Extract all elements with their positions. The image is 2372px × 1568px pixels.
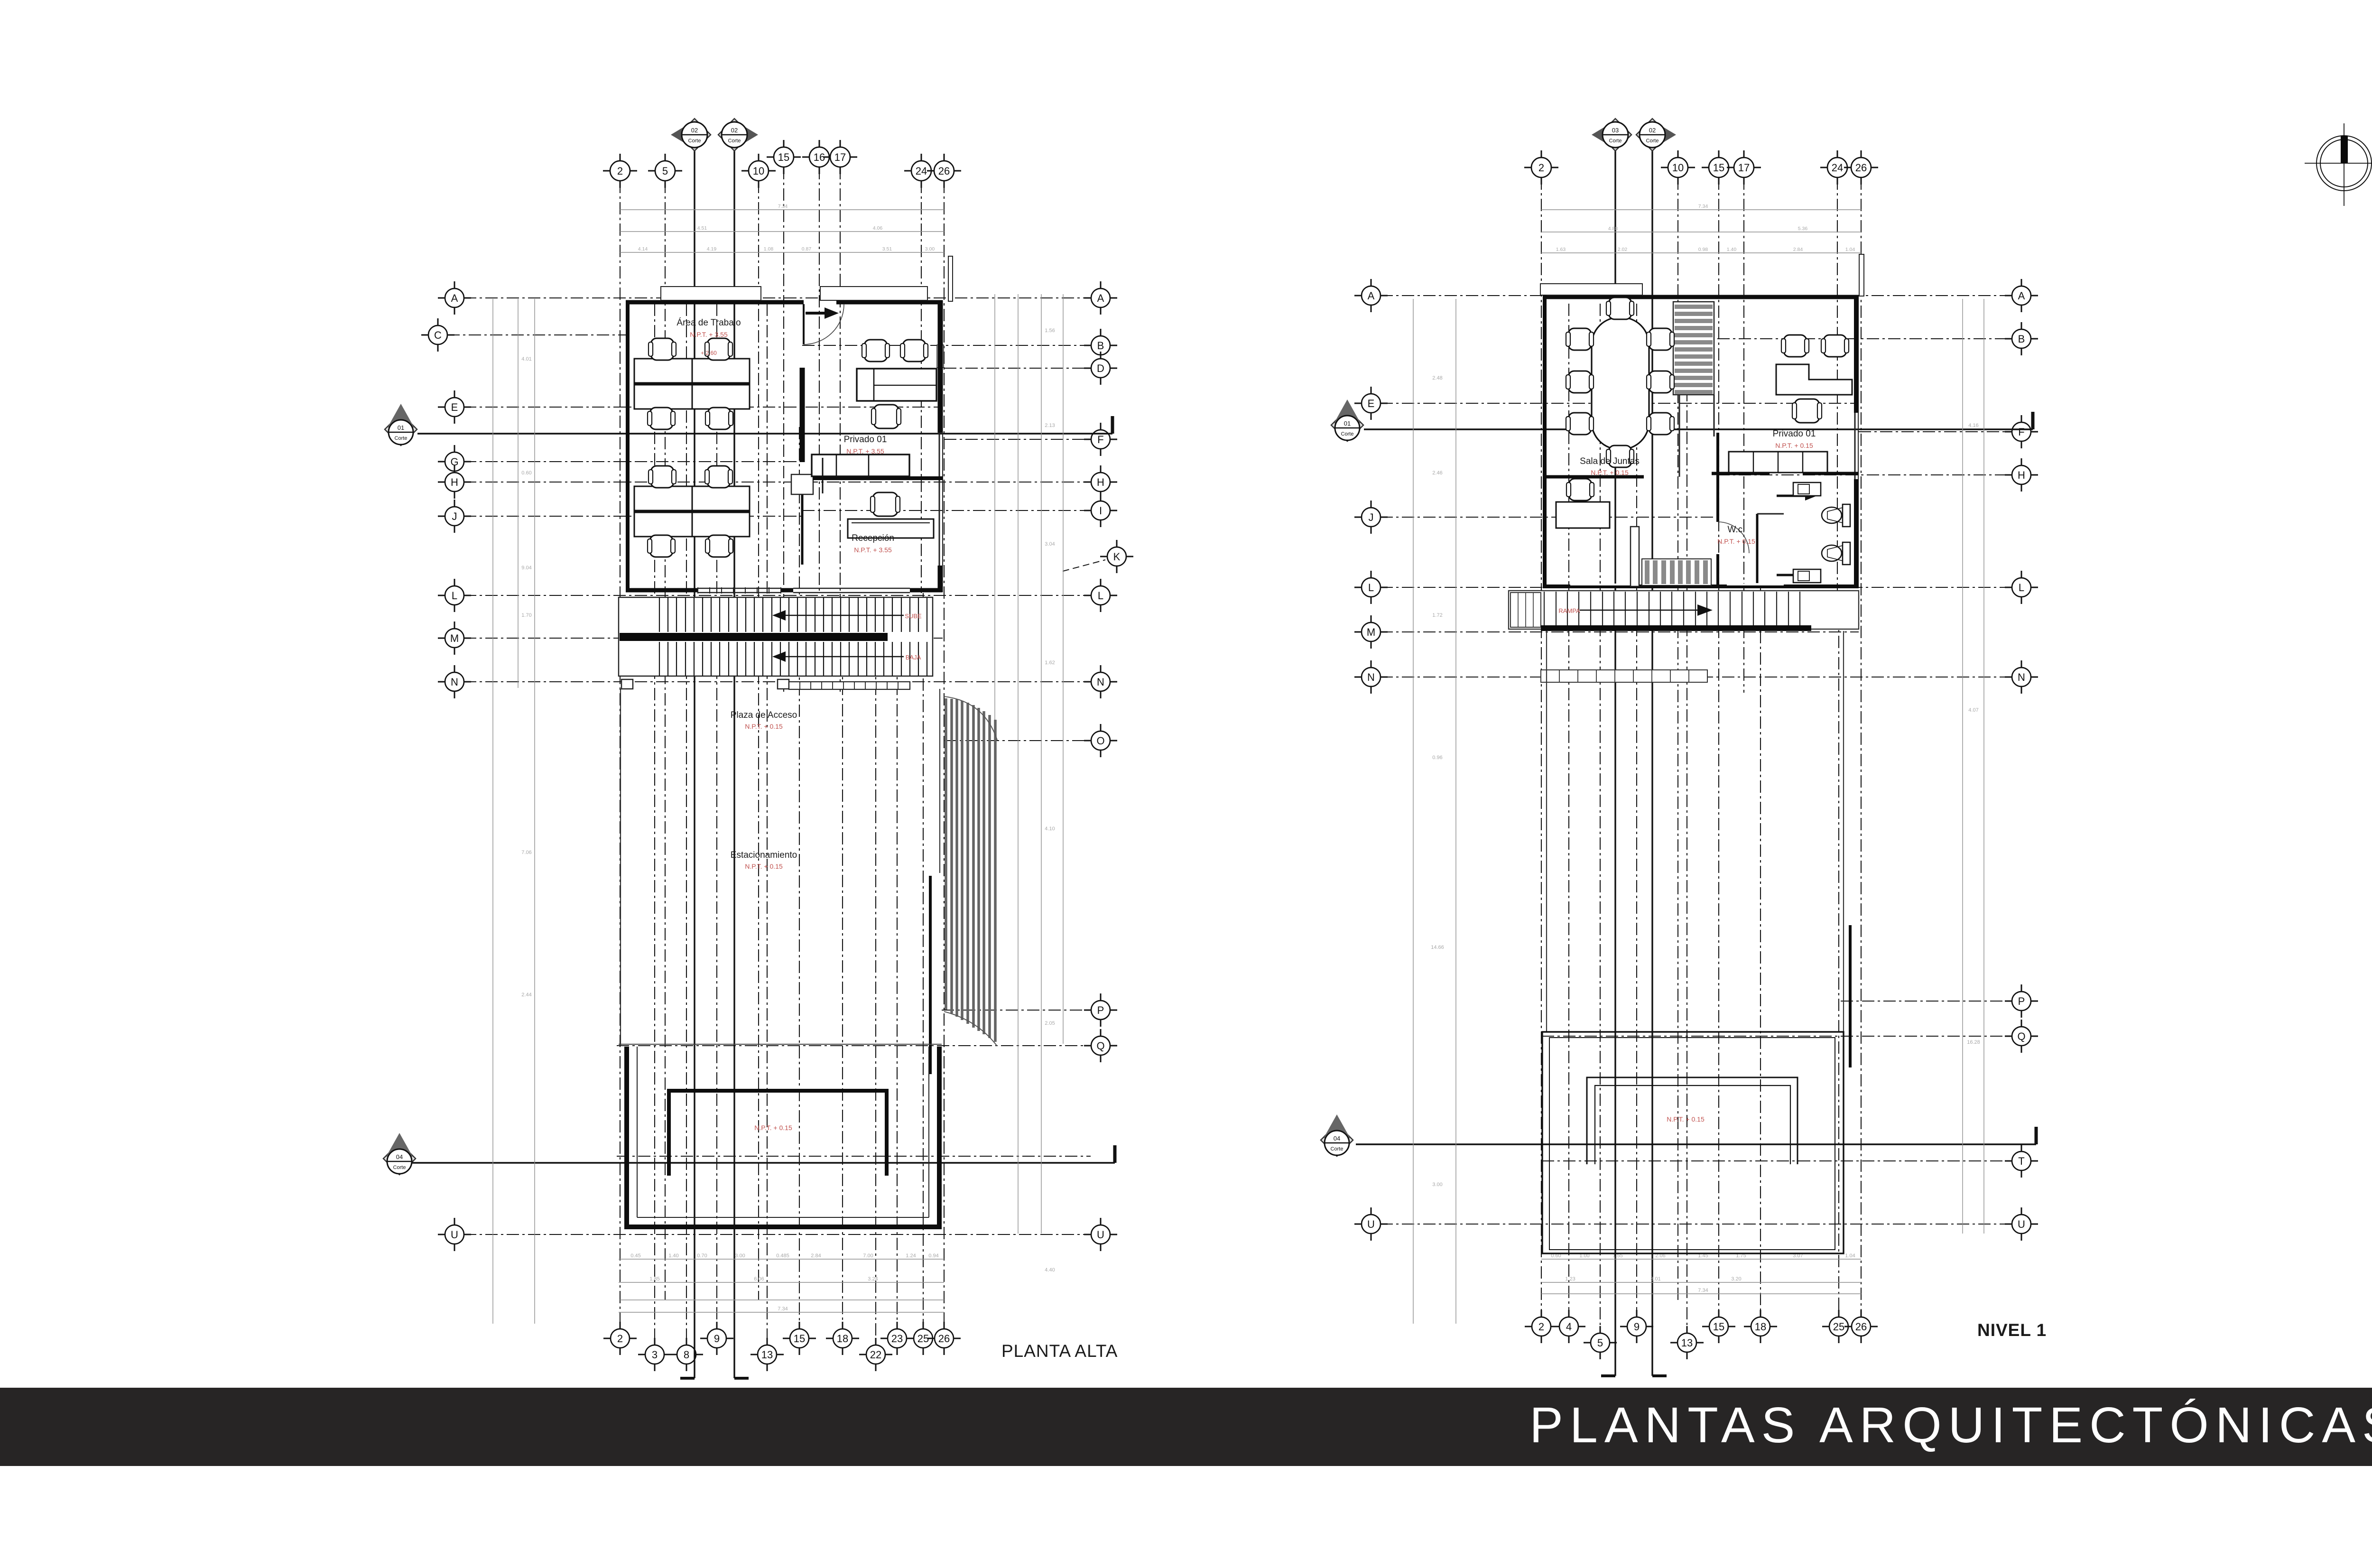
- svg-text:9: 9: [714, 1333, 720, 1345]
- svg-text:10: 10: [1672, 162, 1684, 174]
- svg-text:0.87: 0.87: [802, 246, 812, 252]
- svg-text:9: 9: [1634, 1321, 1640, 1333]
- svg-text:2.46: 2.46: [1432, 470, 1442, 476]
- svg-text:C: C: [434, 329, 442, 341]
- svg-text:Privado 01: Privado 01: [1773, 429, 1816, 439]
- svg-text:J: J: [452, 510, 457, 522]
- svg-text:B: B: [2018, 333, 2025, 345]
- svg-text:U: U: [451, 1229, 458, 1241]
- svg-text:A: A: [451, 292, 458, 304]
- svg-text:9.04: 9.04: [521, 565, 531, 571]
- svg-text:Corte: Corte: [395, 436, 408, 441]
- svg-text:2: 2: [617, 1333, 623, 1345]
- svg-text:Corte: Corte: [728, 138, 741, 144]
- svg-text:14.66: 14.66: [1431, 945, 1444, 950]
- svg-text:N.P.T. + 0.15: N.P.T. + 0.15: [1775, 442, 1813, 449]
- svg-text:N.P.T. + 0.15: N.P.T. + 0.15: [754, 1124, 792, 1132]
- svg-text:04: 04: [396, 1153, 403, 1160]
- svg-text:P: P: [2018, 995, 2025, 1007]
- svg-text:03: 03: [1612, 127, 1619, 134]
- svg-text:Corte: Corte: [1646, 138, 1659, 144]
- svg-text:M: M: [450, 632, 459, 644]
- svg-text:N.P.T. + 0.15: N.P.T. + 0.15: [1667, 1115, 1705, 1123]
- svg-text:1.72: 1.72: [1432, 612, 1442, 618]
- svg-text:7.34: 7.34: [778, 204, 788, 209]
- svg-text:15: 15: [794, 1333, 805, 1345]
- svg-text:M: M: [1367, 626, 1375, 638]
- svg-text:0.98: 0.98: [1698, 247, 1708, 252]
- svg-text:P: P: [1097, 1004, 1104, 1016]
- svg-text:18: 18: [1755, 1321, 1766, 1333]
- svg-text:Plaza de Acceso: Plaza de Acceso: [731, 710, 797, 720]
- svg-text:E: E: [1368, 398, 1375, 409]
- svg-text:Corte: Corte: [393, 1165, 406, 1170]
- svg-text:1.23: 1.23: [1565, 1276, 1575, 1282]
- svg-text:4.01: 4.01: [521, 356, 531, 362]
- svg-text:2.84: 2.84: [1793, 247, 1803, 252]
- svg-text:02: 02: [731, 127, 738, 134]
- svg-text:15: 15: [1713, 162, 1724, 174]
- svg-text:02: 02: [1649, 127, 1656, 134]
- svg-text:L: L: [1098, 590, 1103, 602]
- svg-text:26: 26: [1855, 162, 1867, 174]
- svg-text:3.00: 3.00: [1432, 1182, 1442, 1188]
- svg-text:10: 10: [753, 165, 764, 177]
- svg-text:16.28: 16.28: [1967, 1039, 1980, 1045]
- svg-text:PLANTAS ARQUITECTÓNICAS: PLANTAS ARQUITECTÓNICAS: [1529, 1397, 2372, 1453]
- svg-text:U: U: [2018, 1218, 2025, 1230]
- svg-text:17: 17: [834, 151, 846, 163]
- svg-text:8: 8: [684, 1349, 689, 1361]
- svg-text:1.40: 1.40: [1727, 247, 1737, 252]
- svg-text:7.34: 7.34: [778, 1306, 788, 1312]
- svg-text:4.16: 4.16: [1968, 423, 1978, 428]
- svg-text:6.06: 6.06: [754, 1276, 764, 1282]
- svg-text:T: T: [2018, 1155, 2024, 1167]
- svg-text:E: E: [451, 401, 458, 413]
- svg-text:H: H: [2018, 469, 2025, 481]
- svg-text:H: H: [1097, 476, 1104, 488]
- svg-text:15: 15: [778, 151, 789, 163]
- svg-text:3.00: 3.00: [925, 246, 935, 252]
- svg-text:7.00: 7.00: [863, 1253, 873, 1259]
- svg-text:N: N: [2018, 671, 2025, 683]
- svg-text:1.04: 1.04: [1845, 247, 1855, 252]
- svg-text:5.36: 5.36: [1798, 226, 1808, 232]
- svg-text:A: A: [1097, 292, 1104, 304]
- svg-text:2.05: 2.05: [1045, 1021, 1055, 1026]
- svg-text:+ 2.60: + 2.60: [701, 350, 717, 356]
- svg-text:13: 13: [1681, 1337, 1693, 1349]
- svg-text:24: 24: [916, 165, 927, 177]
- svg-text:N: N: [451, 676, 458, 688]
- svg-text:Corte: Corte: [1341, 431, 1354, 437]
- svg-text:1.24: 1.24: [906, 1253, 916, 1259]
- svg-text:1.08: 1.08: [764, 246, 774, 252]
- svg-text:2: 2: [617, 165, 623, 177]
- svg-text:N: N: [1097, 676, 1104, 688]
- svg-text:Recepción: Recepción: [852, 533, 894, 543]
- svg-text:26: 26: [938, 165, 950, 177]
- svg-text:N.P.T. + 0.15: N.P.T. + 0.15: [745, 723, 783, 730]
- svg-text:7.06: 7.06: [521, 850, 531, 855]
- svg-text:A: A: [2018, 290, 2025, 302]
- svg-text:U: U: [1367, 1218, 1375, 1230]
- svg-text:15: 15: [1713, 1321, 1724, 1333]
- svg-text:Área de Trabajo: Área de Trabajo: [676, 318, 741, 328]
- svg-text:01: 01: [398, 424, 404, 431]
- svg-text:1.04: 1.04: [1845, 1253, 1855, 1259]
- svg-text:25: 25: [917, 1333, 929, 1345]
- svg-text:Privado 01: Privado 01: [844, 435, 887, 445]
- svg-text:4.51: 4.51: [697, 225, 707, 231]
- svg-text:4: 4: [1566, 1321, 1572, 1333]
- svg-text:L: L: [452, 590, 457, 602]
- svg-text:Estacionamiento: Estacionamiento: [731, 850, 797, 860]
- svg-text:5: 5: [1597, 1337, 1603, 1349]
- svg-text:4.88: 4.88: [1608, 226, 1618, 232]
- svg-text:0.96: 0.96: [1432, 755, 1442, 761]
- svg-text:1.62: 1.62: [1045, 660, 1055, 666]
- svg-text:0.60: 0.60: [521, 470, 531, 476]
- svg-text:PLANTA ALTA: PLANTA ALTA: [1001, 1341, 1118, 1361]
- svg-text:22: 22: [870, 1349, 881, 1361]
- svg-text:1.85: 1.85: [649, 1276, 659, 1282]
- svg-text:3.01: 3.01: [1650, 1276, 1660, 1282]
- svg-text:0.485: 0.485: [776, 1253, 789, 1259]
- svg-text:01: 01: [1344, 420, 1351, 427]
- svg-text:Q: Q: [2017, 1030, 2025, 1042]
- svg-text:24: 24: [1832, 162, 1843, 174]
- svg-text:H: H: [451, 476, 458, 488]
- svg-text:1.63: 1.63: [1556, 247, 1566, 252]
- svg-text:F: F: [2018, 426, 2024, 438]
- svg-text:3: 3: [652, 1349, 658, 1361]
- svg-text:D: D: [1097, 362, 1104, 374]
- svg-text:4.40: 4.40: [1045, 1267, 1055, 1273]
- svg-text:0.70: 0.70: [697, 1253, 707, 1259]
- svg-text:5: 5: [662, 165, 668, 177]
- svg-text:26: 26: [938, 1333, 950, 1345]
- svg-text:1.56: 1.56: [1045, 328, 1055, 334]
- svg-text:23: 23: [891, 1333, 903, 1345]
- svg-text:B: B: [1097, 340, 1104, 352]
- svg-text:18: 18: [837, 1333, 848, 1345]
- svg-text:4.06: 4.06: [873, 225, 883, 231]
- svg-text:02: 02: [691, 127, 698, 134]
- svg-text:3.20: 3.20: [1731, 1276, 1741, 1282]
- svg-text:1.40: 1.40: [668, 1253, 678, 1259]
- svg-text:1.70: 1.70: [521, 612, 531, 618]
- svg-text:N: N: [1367, 671, 1375, 683]
- svg-text:J: J: [1369, 511, 1374, 523]
- svg-text:SUBE: SUBE: [905, 612, 922, 620]
- svg-text:7.34: 7.34: [1698, 1288, 1708, 1293]
- svg-text:7.34: 7.34: [1698, 204, 1708, 209]
- svg-text:2.44: 2.44: [521, 992, 531, 998]
- svg-text:2.02: 2.02: [1618, 247, 1628, 252]
- svg-text:W.c.: W.c.: [1728, 525, 1745, 535]
- svg-text:0.45: 0.45: [630, 1253, 640, 1259]
- svg-text:04: 04: [1334, 1135, 1340, 1142]
- svg-text:25: 25: [1833, 1321, 1844, 1333]
- svg-text:O: O: [1096, 735, 1104, 747]
- svg-text:U: U: [1097, 1229, 1104, 1241]
- svg-text:L: L: [1368, 582, 1374, 594]
- svg-text:Q: Q: [1096, 1040, 1104, 1052]
- svg-text:2: 2: [1538, 1321, 1544, 1333]
- svg-text:N.P.T. + 0.15: N.P.T. + 0.15: [1717, 538, 1755, 545]
- svg-text:I: I: [1099, 505, 1102, 517]
- svg-text:Corte: Corte: [1331, 1146, 1344, 1152]
- svg-text:2: 2: [1538, 162, 1544, 174]
- svg-text:RAMPA: RAMPA: [1558, 607, 1580, 614]
- svg-text:0.94: 0.94: [928, 1253, 938, 1259]
- svg-text:NIVEL 1: NIVEL 1: [1977, 1320, 2047, 1340]
- svg-text:N.P.T. + 3.55: N.P.T. + 3.55: [854, 546, 892, 554]
- svg-text:N.P.T. + 0.15: N.P.T. + 0.15: [745, 863, 783, 870]
- svg-text:Sala de Juntas: Sala de Juntas: [1580, 456, 1640, 466]
- svg-text:3.51: 3.51: [882, 246, 892, 252]
- svg-text:F: F: [1097, 434, 1103, 445]
- svg-text:Corte: Corte: [688, 138, 701, 144]
- svg-text:A: A: [1368, 290, 1375, 302]
- svg-text:3.24: 3.24: [868, 1276, 878, 1282]
- svg-text:3.00: 3.00: [735, 1253, 745, 1259]
- svg-text:3.04: 3.04: [1045, 541, 1055, 547]
- svg-text:4.07: 4.07: [1968, 707, 1978, 713]
- svg-text:26: 26: [1855, 1321, 1867, 1333]
- svg-text:Corte: Corte: [1609, 138, 1622, 144]
- svg-text:2.48: 2.48: [1432, 375, 1442, 381]
- svg-text:N.P.T. + 3.55: N.P.T. + 3.55: [690, 331, 728, 338]
- svg-text:K: K: [1113, 551, 1121, 563]
- svg-text:4.19: 4.19: [707, 246, 717, 252]
- svg-text:4.10: 4.10: [1045, 826, 1055, 832]
- svg-text:17: 17: [1738, 162, 1750, 174]
- svg-text:2.13: 2.13: [1045, 423, 1055, 428]
- svg-text:2.84: 2.84: [811, 1253, 821, 1259]
- svg-text:13: 13: [761, 1349, 773, 1361]
- svg-text:BAJA: BAJA: [906, 654, 921, 661]
- svg-text:4.14: 4.14: [638, 246, 648, 252]
- svg-text:L: L: [2019, 582, 2024, 594]
